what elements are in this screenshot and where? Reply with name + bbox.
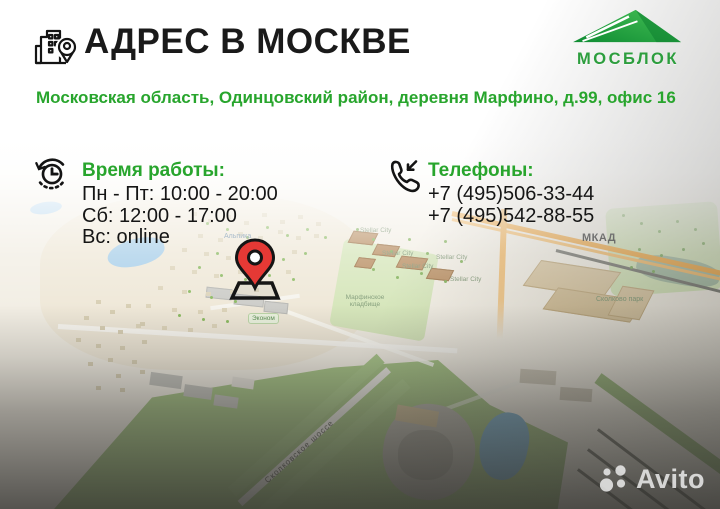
building-pin-icon <box>33 22 79 66</box>
map-trees-cluster <box>622 214 625 217</box>
map-label-stellar-city: Stellar City <box>360 227 391 234</box>
map-label-stellar-city: Stellar City <box>402 263 433 270</box>
logo-text: МОСБЛОК <box>560 50 696 69</box>
hours-label: Время работы: <box>82 160 225 182</box>
phone-icon <box>384 156 422 196</box>
logo-mountain-icon <box>569 8 687 44</box>
phones-label: Телефоны: <box>428 160 534 182</box>
map-houses-cluster <box>96 300 101 304</box>
map-label-stellar-city: Stellar City <box>382 250 413 257</box>
hours-line-saturday: Сб: 12:00 - 17:00 <box>82 206 278 228</box>
map-label-cemetery: Марфинское кладбище <box>342 294 388 308</box>
clock-icon <box>33 156 71 194</box>
map-building <box>560 387 593 402</box>
map-label-mkad: МКАД <box>582 235 616 242</box>
map-trees-cluster <box>356 228 359 231</box>
page-title: АДРЕС В МОСКВЕ <box>84 22 411 62</box>
avito-logo-icon <box>598 464 631 495</box>
map-label-stellar-city: Stellar City <box>436 254 467 261</box>
phone-number-1: +7 (495)506-33-44 <box>428 184 594 206</box>
map-label-econom: Эконом <box>248 313 279 324</box>
map-building <box>520 369 557 385</box>
company-logo: МОСБЛОК <box>560 8 696 69</box>
hours-line-sunday: Вс: online <box>82 227 278 249</box>
map-pond-small <box>29 200 62 216</box>
phone-numbers: +7 (495)506-33-44 +7 (495)542-88-55 <box>428 184 594 227</box>
map-label-park: Сколково парк <box>596 296 643 303</box>
ad-canvas: МКАД Альпика Stellar City Stellar City S… <box>0 0 720 509</box>
map-quarry-inner <box>398 430 453 480</box>
phone-number-2: +7 (495)542-88-55 <box>428 206 594 228</box>
avito-watermark: Avito <box>598 464 705 495</box>
map-label-stellar-city: Stellar City <box>450 276 481 283</box>
hours-lines: Пн - Пт: 10:00 - 20:00 Сб: 12:00 - 17:00… <box>82 184 278 249</box>
address-line: Московская область, Одинцовский район, д… <box>36 88 701 108</box>
map-building <box>149 372 182 389</box>
avito-watermark-text: Avito <box>636 464 705 495</box>
hours-line-weekdays: Пн - Пт: 10:00 - 20:00 <box>82 184 278 206</box>
